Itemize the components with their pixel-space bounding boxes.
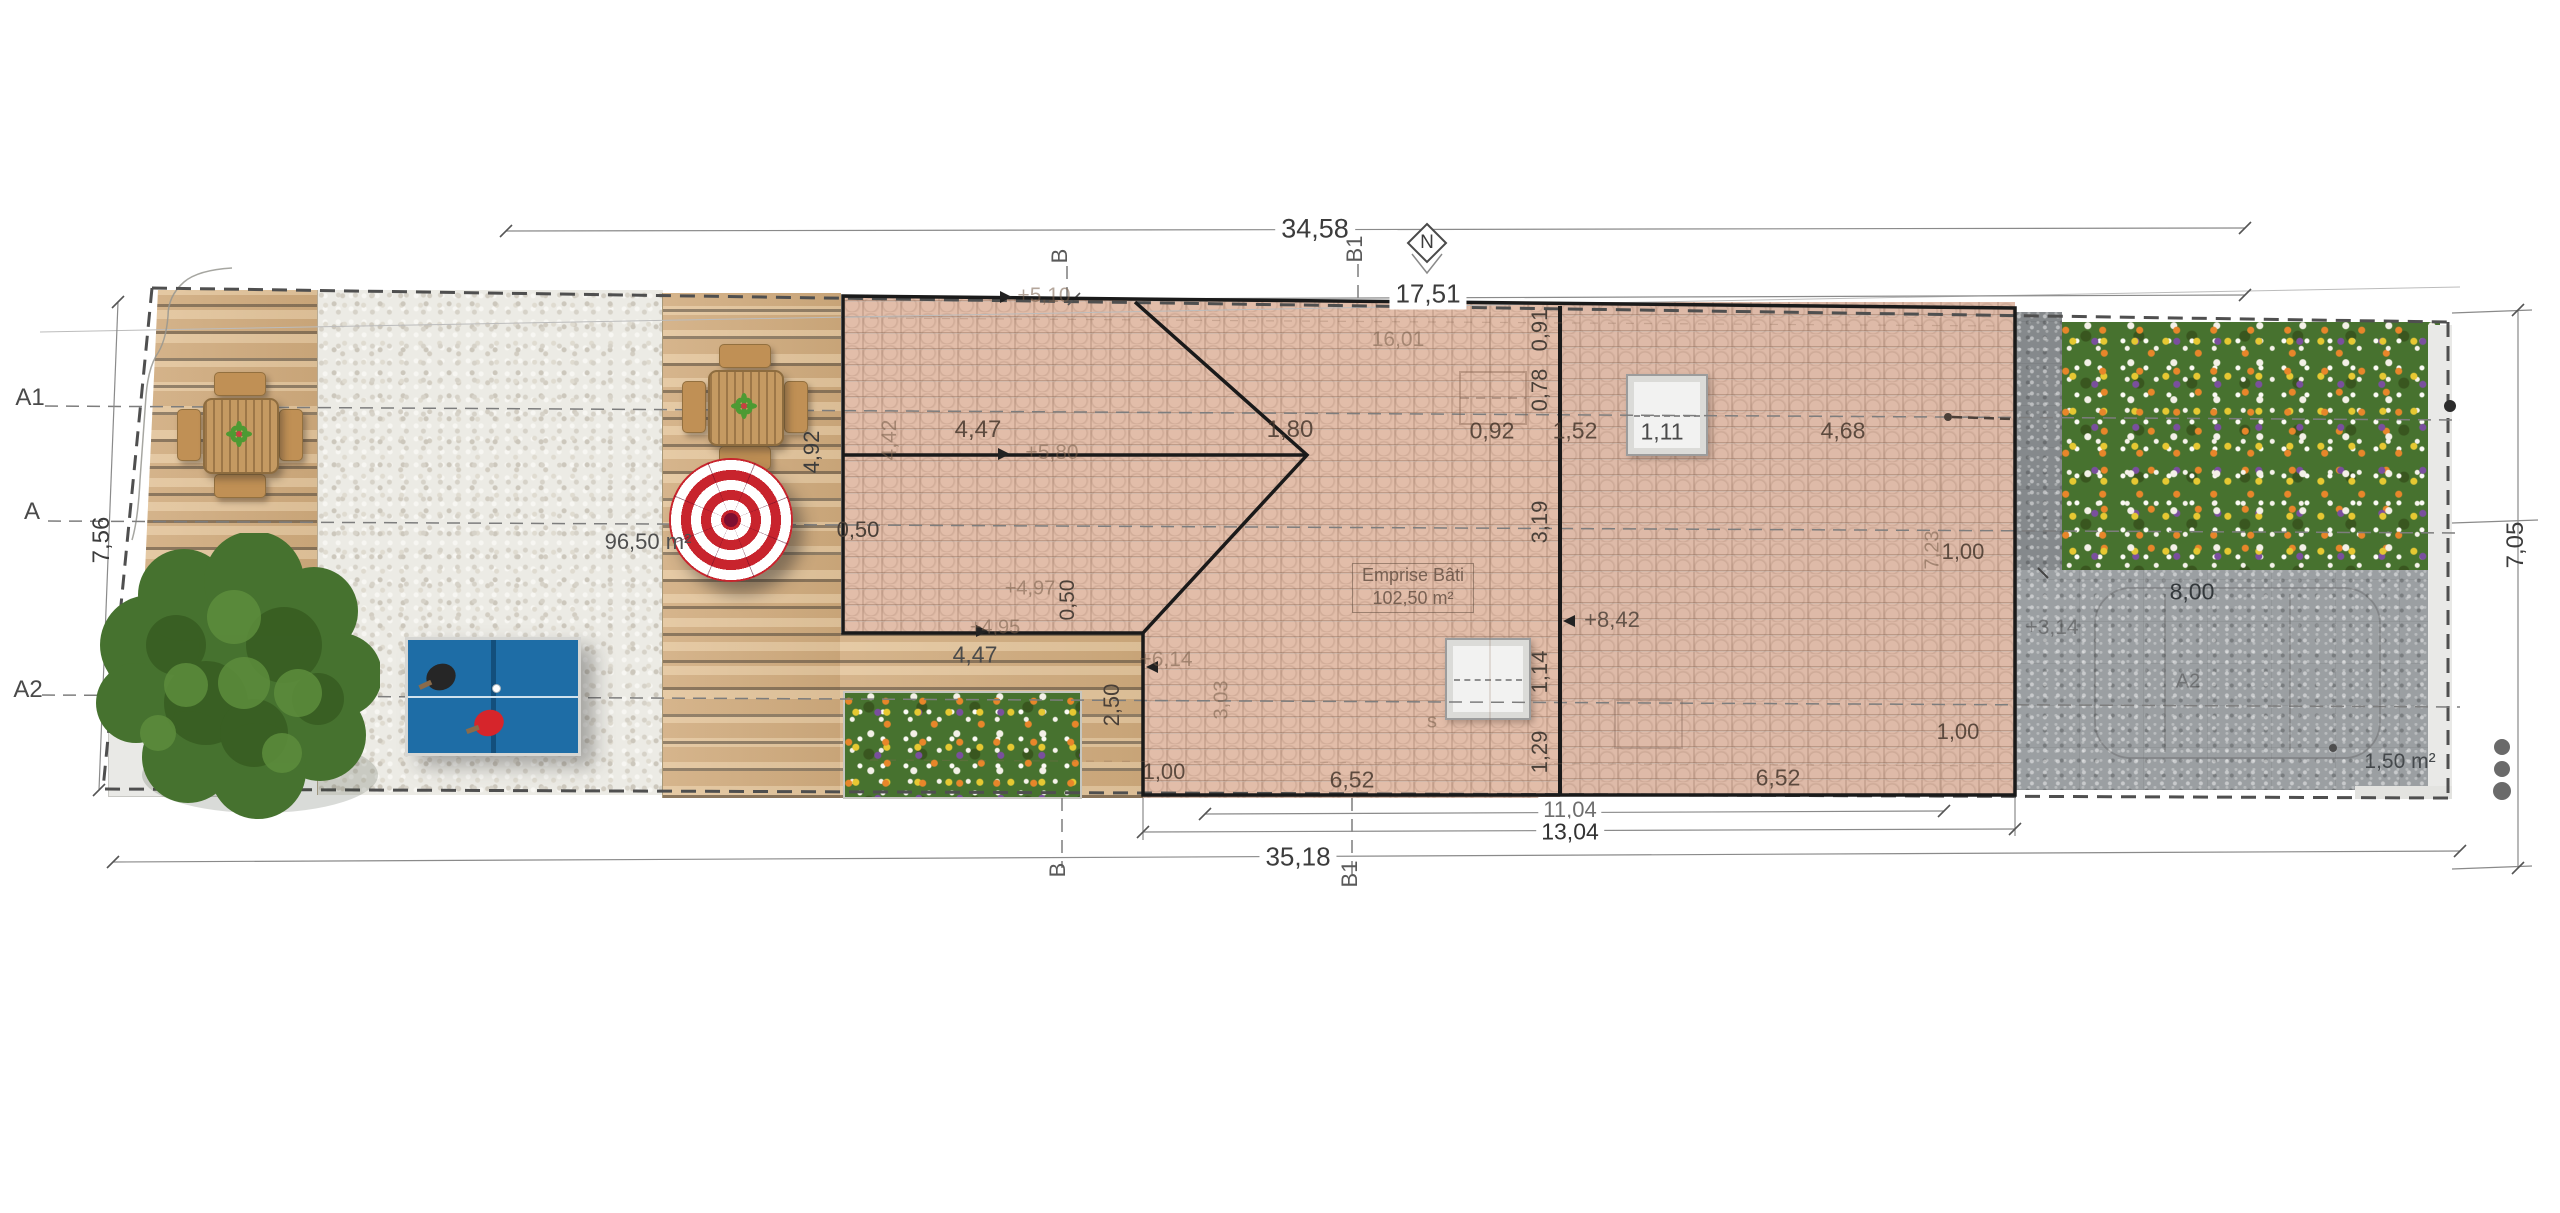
chair bbox=[214, 474, 266, 498]
dim-notch-side: 3,03 bbox=[1211, 681, 1234, 720]
ball-icon bbox=[492, 684, 501, 693]
level-842: +8,42 bbox=[1584, 607, 1640, 633]
marker-b1-bottom: B1 bbox=[1337, 861, 1363, 888]
level-314: +3,14 bbox=[2025, 616, 2078, 640]
chair bbox=[177, 409, 201, 461]
dim-skylight1: 1,11 bbox=[1640, 419, 1683, 446]
dim-bottom-mid: 13,04 bbox=[1536, 819, 1604, 846]
marker-a1: A1 bbox=[15, 384, 44, 412]
dim-bottom-total: 35,18 bbox=[1259, 842, 1336, 873]
marker-b-bottom: B bbox=[1045, 863, 1071, 878]
marker-b-top: B bbox=[1047, 249, 1073, 264]
flower-bed bbox=[843, 691, 1082, 799]
plant-icon bbox=[226, 421, 252, 447]
dim-notch-gap: 0,50 bbox=[1056, 580, 1080, 621]
dim-right-width: 7,05 bbox=[2502, 522, 2530, 569]
area-bed: 1,50 m² bbox=[2364, 750, 2435, 774]
dim-dormer-gap: 1,52 bbox=[1553, 418, 1598, 445]
marker-s: s bbox=[1427, 711, 1437, 734]
area-terrace: 96,50 m² bbox=[605, 529, 692, 555]
marker-a2-paving: A2 bbox=[2176, 671, 2200, 694]
dining-table-set-middle bbox=[682, 344, 806, 468]
dim-right-inner: 7,23 bbox=[1922, 531, 1945, 570]
dim-edge4: 1,29 bbox=[1527, 731, 1553, 774]
dim-sky2-h: 1,14 bbox=[1527, 651, 1553, 694]
chair bbox=[214, 372, 266, 396]
dim-notch-h: 2,50 bbox=[1099, 684, 1125, 727]
level-495: +4,95 bbox=[970, 617, 1021, 640]
emprise-line2: 102,50 m² bbox=[1353, 587, 1473, 610]
level-497: +4,97 bbox=[1005, 578, 1056, 601]
skylight-west bbox=[1445, 638, 1531, 720]
dim-deck-length: 4,92 bbox=[799, 431, 825, 474]
chair bbox=[279, 409, 303, 461]
north-label: N bbox=[1420, 232, 1434, 254]
level-580: +5,80 bbox=[1025, 441, 1078, 465]
side-strip bbox=[2015, 312, 2062, 574]
dim-deck-notch: 4,47 bbox=[953, 642, 998, 669]
level-614: +6,14 bbox=[1139, 648, 1192, 672]
dim-ridge-left: 4,42 bbox=[878, 420, 902, 461]
ping-pong-table bbox=[405, 637, 581, 756]
dim-paving: 8,00 bbox=[2170, 579, 2215, 606]
marker-a: A bbox=[24, 498, 40, 526]
dim-edge1: 0,91 bbox=[1527, 309, 1553, 352]
dim-eave-right: 6,52 bbox=[1756, 765, 1801, 792]
dim-edge2: 0,78 bbox=[1527, 369, 1553, 412]
paddle-black-icon bbox=[422, 659, 460, 695]
flower-meadow bbox=[2062, 322, 2440, 572]
skylight-axis bbox=[1634, 415, 1700, 417]
plant-icon bbox=[731, 393, 757, 419]
tree bbox=[92, 533, 380, 821]
chair bbox=[682, 381, 706, 433]
dim-roof-top: 17,51 bbox=[1389, 279, 1466, 310]
right-edging bbox=[2428, 325, 2452, 798]
skylight-axis bbox=[1454, 679, 1523, 681]
center-line bbox=[408, 696, 578, 698]
bottom-edging bbox=[2355, 786, 2452, 799]
parasol bbox=[669, 458, 793, 582]
dim-dormer: 0,92 bbox=[1470, 418, 1515, 445]
site-plan: 34,58 17,51 N B B1 B B1 A1 A A2 7,56 7,0… bbox=[0, 0, 2560, 1213]
chair bbox=[719, 344, 771, 368]
level-510: +5,10 bbox=[1017, 284, 1070, 308]
dim-gap-top: 0,50 bbox=[837, 517, 880, 543]
dim-ridge-total: 16,01 bbox=[1372, 328, 1425, 352]
dim-left-width: 7,56 bbox=[88, 517, 116, 564]
paddle-red-icon bbox=[470, 706, 507, 741]
dim-one-right2: 1,00 bbox=[1937, 719, 1980, 745]
dim-one-right1: 1,00 bbox=[1942, 539, 1985, 565]
emprise-label: Emprise Bâti 102,50 m² bbox=[1352, 563, 1474, 613]
chair bbox=[784, 381, 808, 433]
dim-one-left: 1,00 bbox=[1143, 759, 1186, 785]
dim-roof-seg: 4,47 bbox=[955, 416, 1002, 444]
emprise-line1: Emprise Bâti bbox=[1353, 564, 1473, 587]
dim-roof-right: 4,68 bbox=[1821, 418, 1866, 445]
marker-a2: A2 bbox=[13, 676, 42, 704]
marker-b1-top: B1 bbox=[1342, 236, 1368, 263]
dining-table-set-left bbox=[177, 372, 301, 496]
dim-gable: 1,80 bbox=[1267, 416, 1314, 444]
dim-eave-left: 6,52 bbox=[1330, 767, 1375, 794]
dim-edge3: 3,19 bbox=[1527, 501, 1553, 544]
